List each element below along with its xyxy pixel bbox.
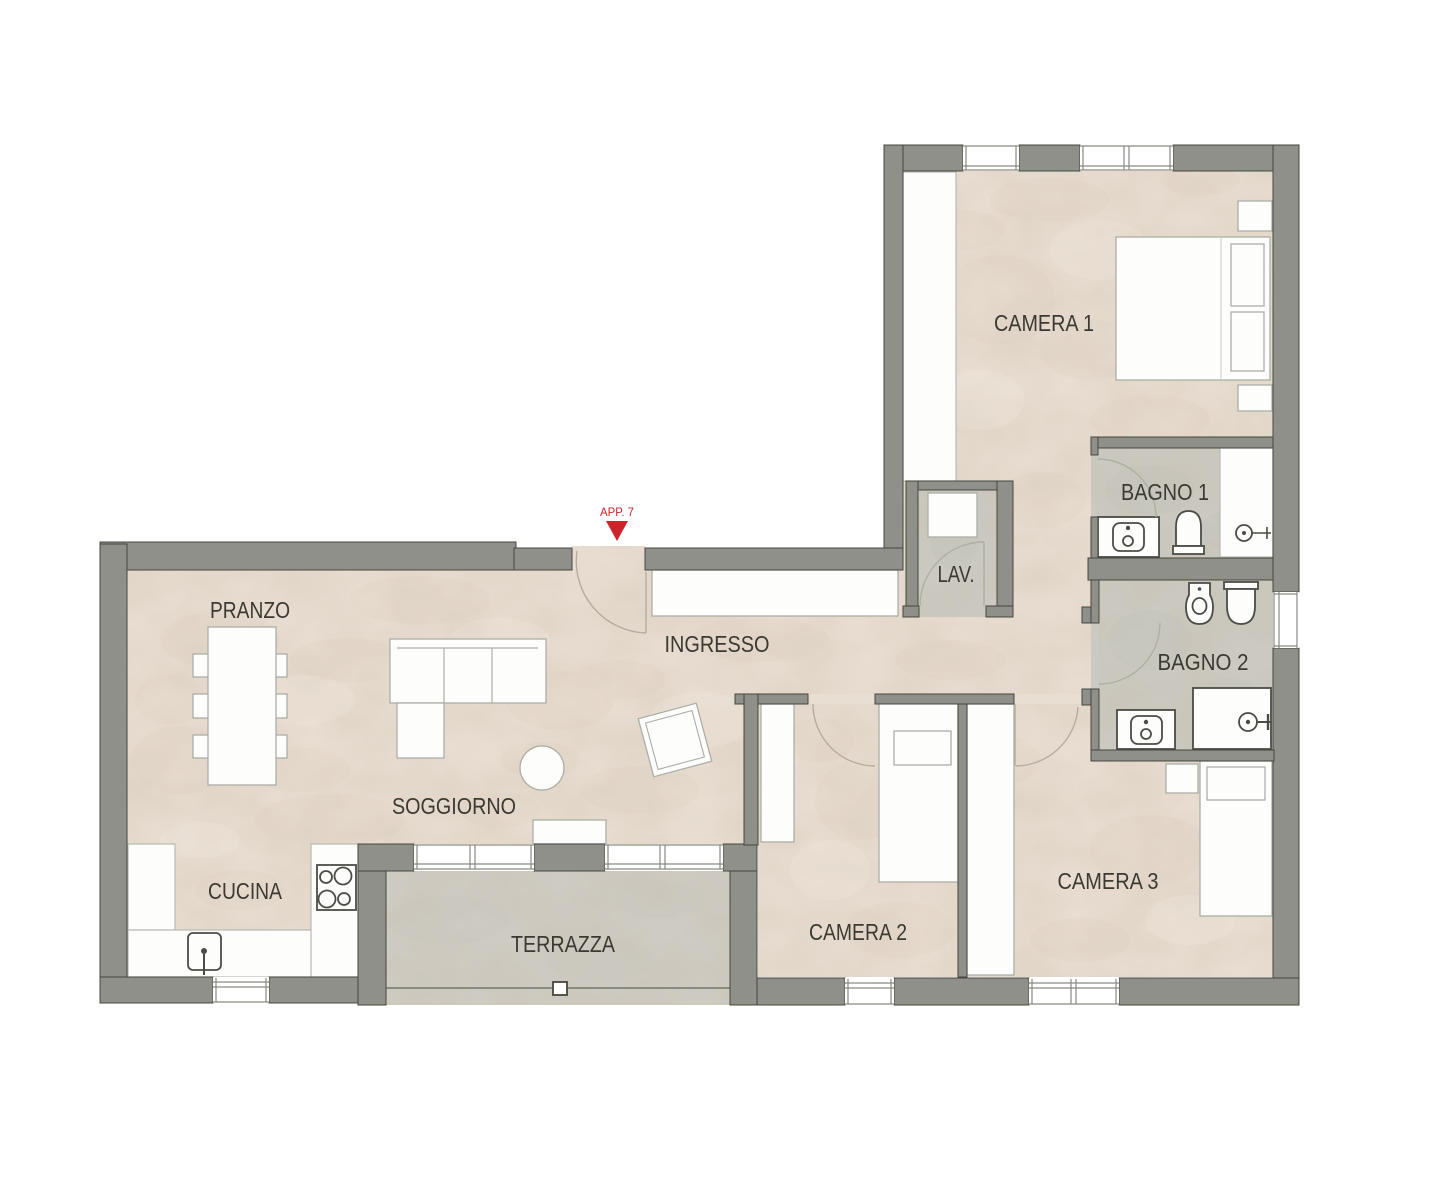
svg-text:CAMERA 3: CAMERA 3 [1058, 868, 1159, 894]
svg-text:SOGGIORNO: SOGGIORNO [392, 793, 516, 819]
svg-text:BAGNO 1: BAGNO 1 [1121, 479, 1209, 505]
svg-text:CAMERA 1: CAMERA 1 [994, 310, 1094, 336]
svg-text:APP. 7: APP. 7 [600, 507, 634, 519]
svg-text:LAV.: LAV. [938, 561, 975, 587]
svg-text:BAGNO 2: BAGNO 2 [1158, 649, 1249, 675]
svg-text:INGRESSO: INGRESSO [665, 631, 770, 657]
svg-text:CAMERA 2: CAMERA 2 [809, 919, 907, 945]
svg-text:PRANZO: PRANZO [210, 597, 290, 623]
svg-text:TERRAZZA: TERRAZZA [511, 931, 616, 957]
svg-text:CUCINA: CUCINA [208, 878, 283, 904]
